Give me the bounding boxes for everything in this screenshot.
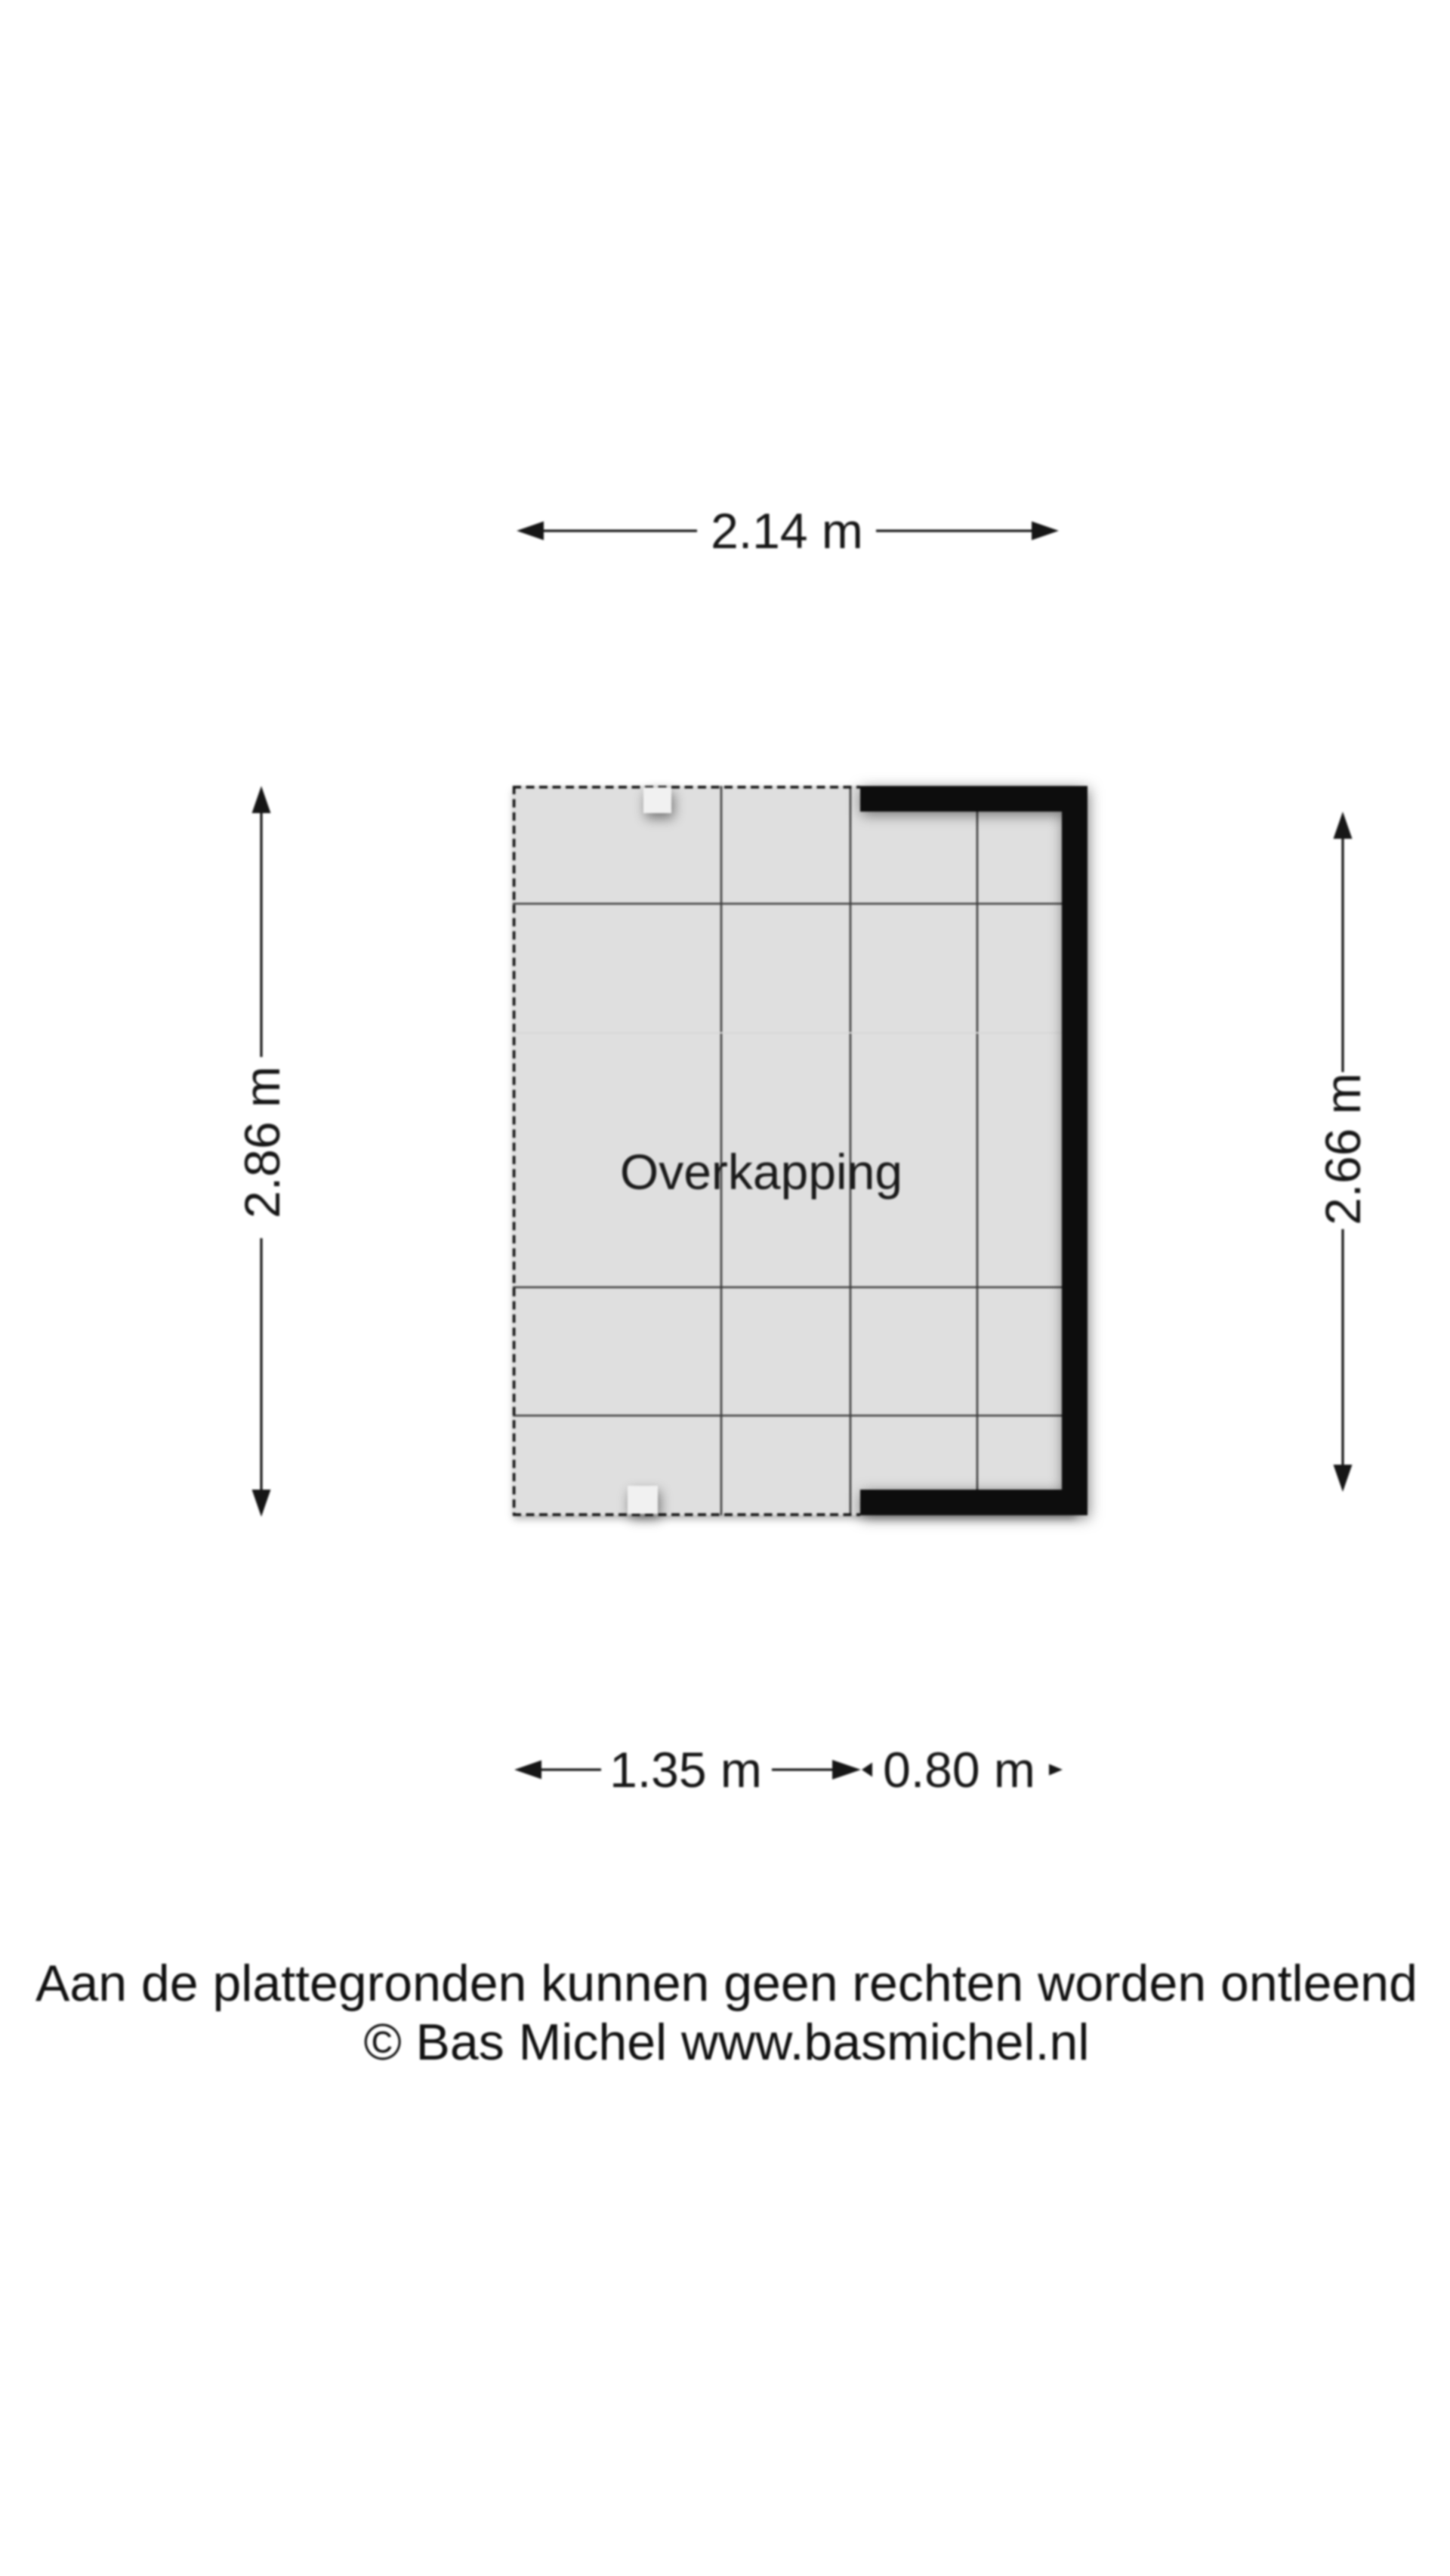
svg-text:0.80 m: 0.80 m [883, 1742, 1035, 1798]
svg-text:© Bas Michel www.basmichel.nl: © Bas Michel www.basmichel.nl [364, 2014, 1090, 2071]
svg-text:Aan de plattegronden kunnen ge: Aan de plattegronden kunnen geen rechten… [35, 1955, 1418, 2012]
svg-text:Overkapping: Overkapping [620, 1144, 902, 1200]
svg-text:2.86 m: 2.86 m [234, 1066, 290, 1219]
svg-text:2.66 m: 2.66 m [1315, 1073, 1371, 1225]
svg-text:1.35 m: 1.35 m [609, 1742, 762, 1798]
svg-text:2.14 m: 2.14 m [711, 503, 863, 559]
